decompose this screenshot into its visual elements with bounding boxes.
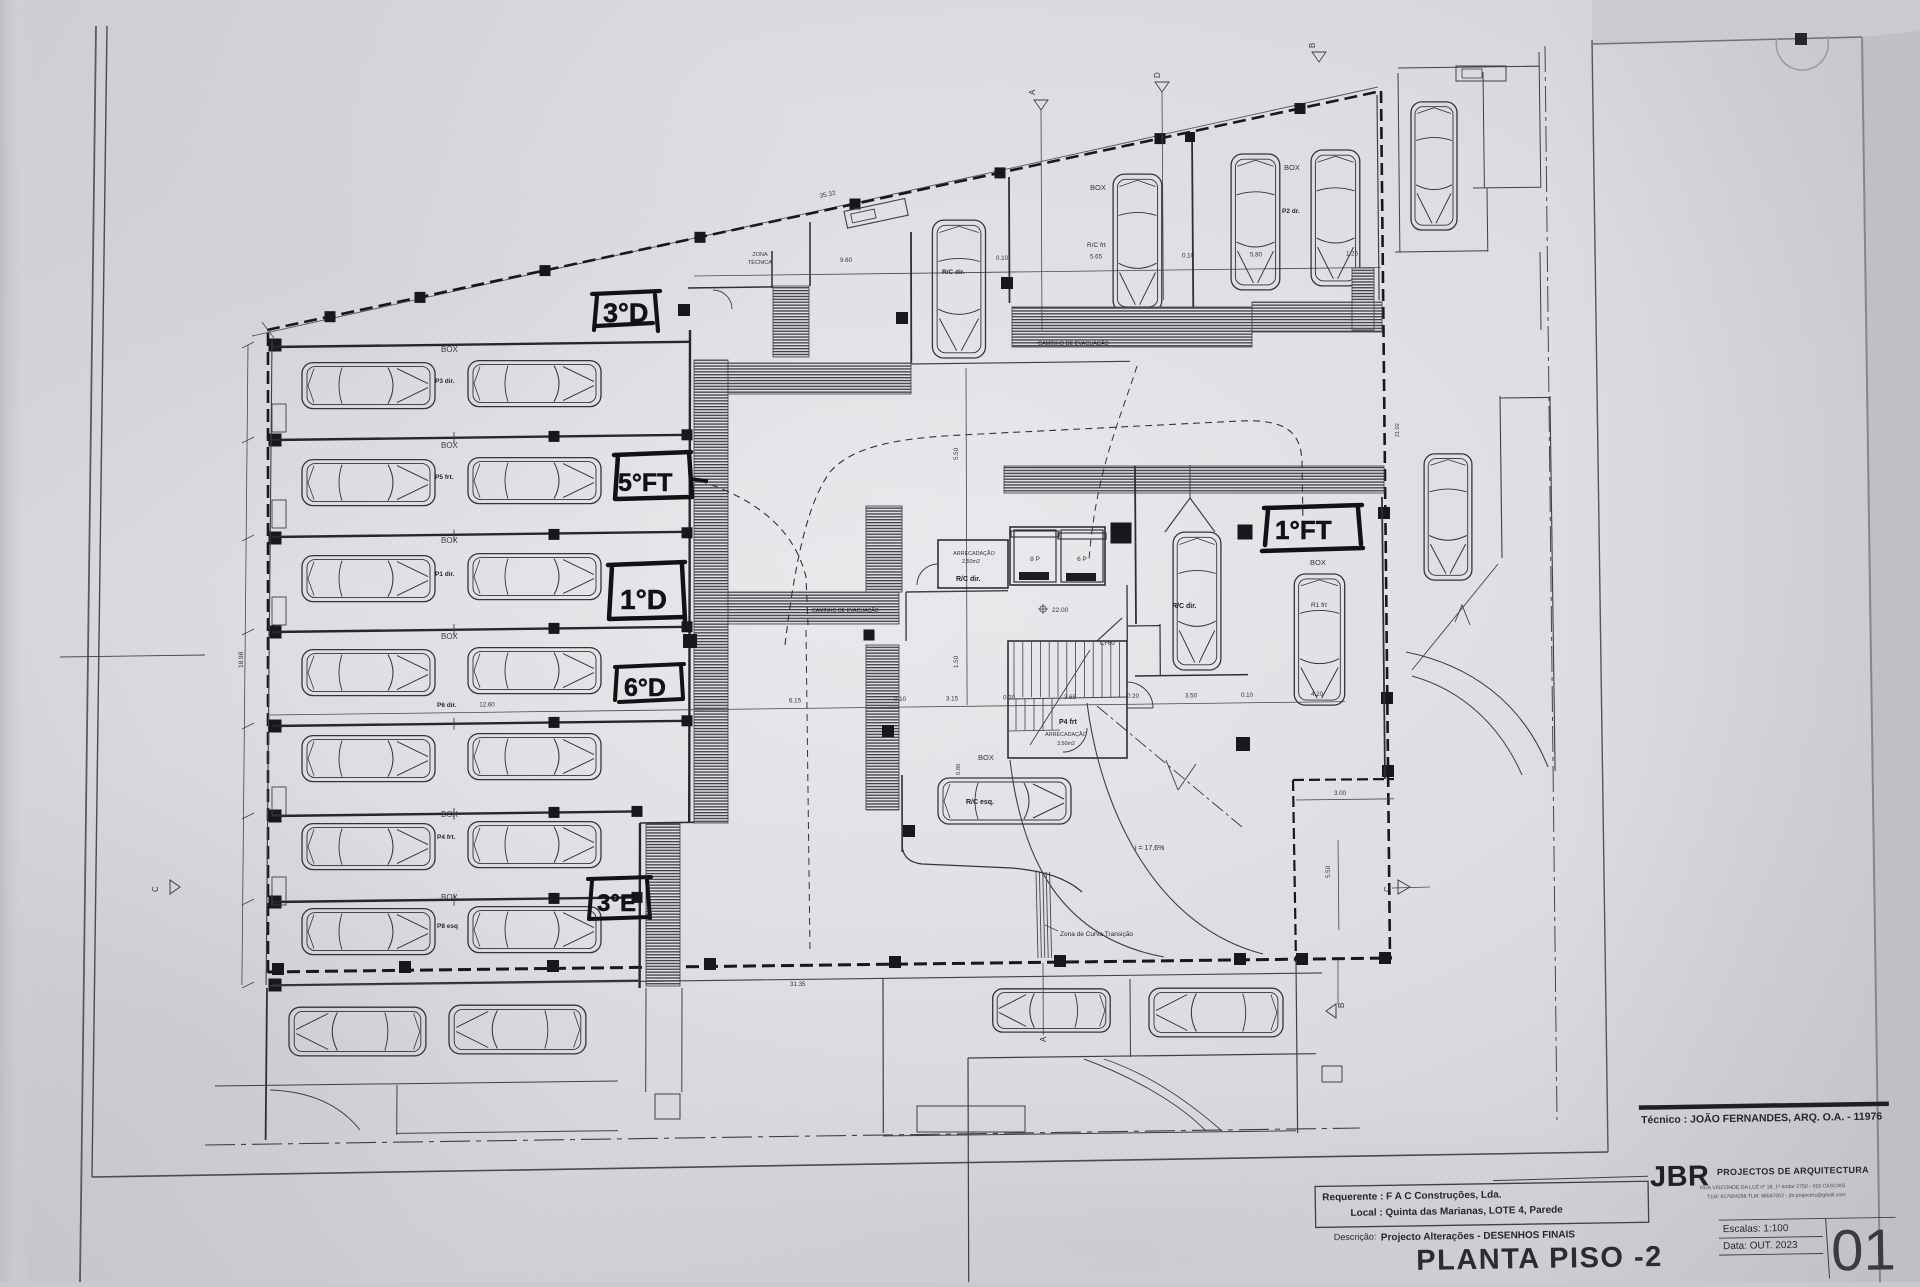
svg-text:BOX: BOX <box>441 536 459 545</box>
svg-text:3.00: 3.00 <box>1334 790 1347 797</box>
svg-text:TÉCNICA: TÉCNICA <box>748 259 772 266</box>
svg-text:P8 esq: P8 esq <box>437 923 458 930</box>
svg-text:1.50: 1.50 <box>953 655 960 668</box>
svg-text:CAMINHO DE EVACUAÇÃO: CAMINHO DE EVACUAÇÃO <box>812 607 879 614</box>
svg-text:Descrição:: Descrição: <box>1334 1232 1377 1243</box>
svg-text:6 P: 6 P <box>1077 556 1087 563</box>
svg-text:BOX: BOX <box>1284 163 1300 172</box>
svg-text:R/C dir.: R/C dir. <box>942 269 965 276</box>
svg-text:0.20: 0.20 <box>1127 693 1140 700</box>
svg-text:0.10: 0.10 <box>1241 692 1254 699</box>
svg-text:ARRECADAÇÃO: ARRECADAÇÃO <box>953 550 995 557</box>
svg-text:R1 frt: R1 frt <box>1311 602 1327 609</box>
svg-text:1°FT: 1°FT <box>1275 515 1332 545</box>
svg-text:BOX: BOX <box>441 632 459 641</box>
svg-text:P3 dir.: P3 dir. <box>435 378 455 385</box>
svg-text:6°D: 6°D <box>624 674 666 702</box>
svg-text:CAMINHO DE EVACUAÇÃO: CAMINHO DE EVACUAÇÃO <box>1038 340 1110 347</box>
svg-text:BOX: BOX <box>441 441 459 450</box>
svg-text:BOX: BOX <box>441 810 459 819</box>
svg-text:3.15: 3.15 <box>946 696 959 703</box>
svg-text:0.10: 0.10 <box>894 696 907 703</box>
svg-text:BOX: BOX <box>441 345 459 354</box>
svg-text:Zona de Curva Transição: Zona de Curva Transição <box>1060 931 1133 938</box>
svg-text:Escalas: 1:100: Escalas: 1:100 <box>1723 1223 1789 1235</box>
svg-text:3°D: 3°D <box>603 298 648 328</box>
svg-text:P1 dir.: P1 dir. <box>435 571 455 578</box>
svg-text:C: C <box>1383 886 1392 892</box>
svg-text:01: 01 <box>1831 1217 1897 1282</box>
svg-text:1.25: 1.25 <box>1346 250 1359 257</box>
svg-text:4.20: 4.20 <box>1311 691 1324 698</box>
svg-text:P4 frt: P4 frt <box>1059 719 1078 726</box>
svg-text:B: B <box>1308 43 1317 48</box>
svg-text:i = 17,6%: i = 17,6% <box>1135 845 1164 852</box>
svg-text:0.80: 0.80 <box>956 764 962 775</box>
svg-text:9.60: 9.60 <box>840 257 853 264</box>
svg-text:R/C esq.: R/C esq. <box>966 799 994 806</box>
svg-text:8 P: 8 P <box>1030 556 1040 563</box>
svg-text:CF60: CF60 <box>1100 641 1115 647</box>
svg-text:0.10: 0.10 <box>996 255 1009 262</box>
svg-text:R/C dir.: R/C dir. <box>956 576 981 583</box>
svg-text:A: A <box>1028 89 1037 95</box>
svg-text:5.80: 5.80 <box>1250 252 1263 259</box>
svg-text:BOX: BOX <box>1310 558 1326 567</box>
svg-text:P5 frt.: P5 frt. <box>435 474 454 481</box>
svg-text:3°E: 3°E <box>597 890 636 917</box>
svg-text:2,50m2: 2,50m2 <box>962 559 980 565</box>
svg-text:BOX: BOX <box>1090 183 1106 192</box>
svg-text:ARRECADAÇÃO: ARRECADAÇÃO <box>1045 731 1087 738</box>
svg-text:3.65: 3.65 <box>1064 694 1077 701</box>
svg-text:BOX: BOX <box>978 753 994 762</box>
svg-text:5.50: 5.50 <box>1325 865 1332 878</box>
svg-text:P6 dir.: P6 dir. <box>437 702 457 709</box>
svg-text:0.20: 0.20 <box>1003 695 1016 702</box>
svg-text:C: C <box>151 886 160 892</box>
svg-text:ZONA: ZONA <box>752 252 768 258</box>
svg-text:R/C frt: R/C frt <box>1087 242 1106 249</box>
svg-text:3.50: 3.50 <box>1185 693 1198 700</box>
svg-text:12.60: 12.60 <box>479 701 495 708</box>
svg-text:5.50: 5.50 <box>953 447 960 460</box>
svg-text:22.00: 22.00 <box>1052 607 1069 614</box>
svg-text:5.65: 5.65 <box>1090 254 1103 261</box>
svg-text:R/C dir.: R/C dir. <box>1172 603 1197 610</box>
svg-text:A: A <box>1039 1036 1048 1042</box>
svg-text:5°FT: 5°FT <box>618 469 672 497</box>
svg-text:D: D <box>1153 72 1162 78</box>
svg-text:P2 dr.: P2 dr. <box>1282 208 1300 215</box>
svg-text:6.15: 6.15 <box>789 697 802 704</box>
svg-text:Data: OUT. 2023: Data: OUT. 2023 <box>1723 1240 1798 1252</box>
svg-text:18.98: 18.98 <box>238 651 245 668</box>
svg-text:PLANTA PISO -2: PLANTA PISO -2 <box>1416 1241 1663 1277</box>
svg-text:1°D: 1°D <box>620 584 667 615</box>
svg-text:P4 frt.: P4 frt. <box>437 834 456 841</box>
svg-text:BOX: BOX <box>441 893 459 902</box>
svg-text:3,50m2: 3,50m2 <box>1057 741 1075 747</box>
svg-text:21.02: 21.02 <box>1395 423 1401 437</box>
svg-text:31.35: 31.35 <box>790 981 806 988</box>
